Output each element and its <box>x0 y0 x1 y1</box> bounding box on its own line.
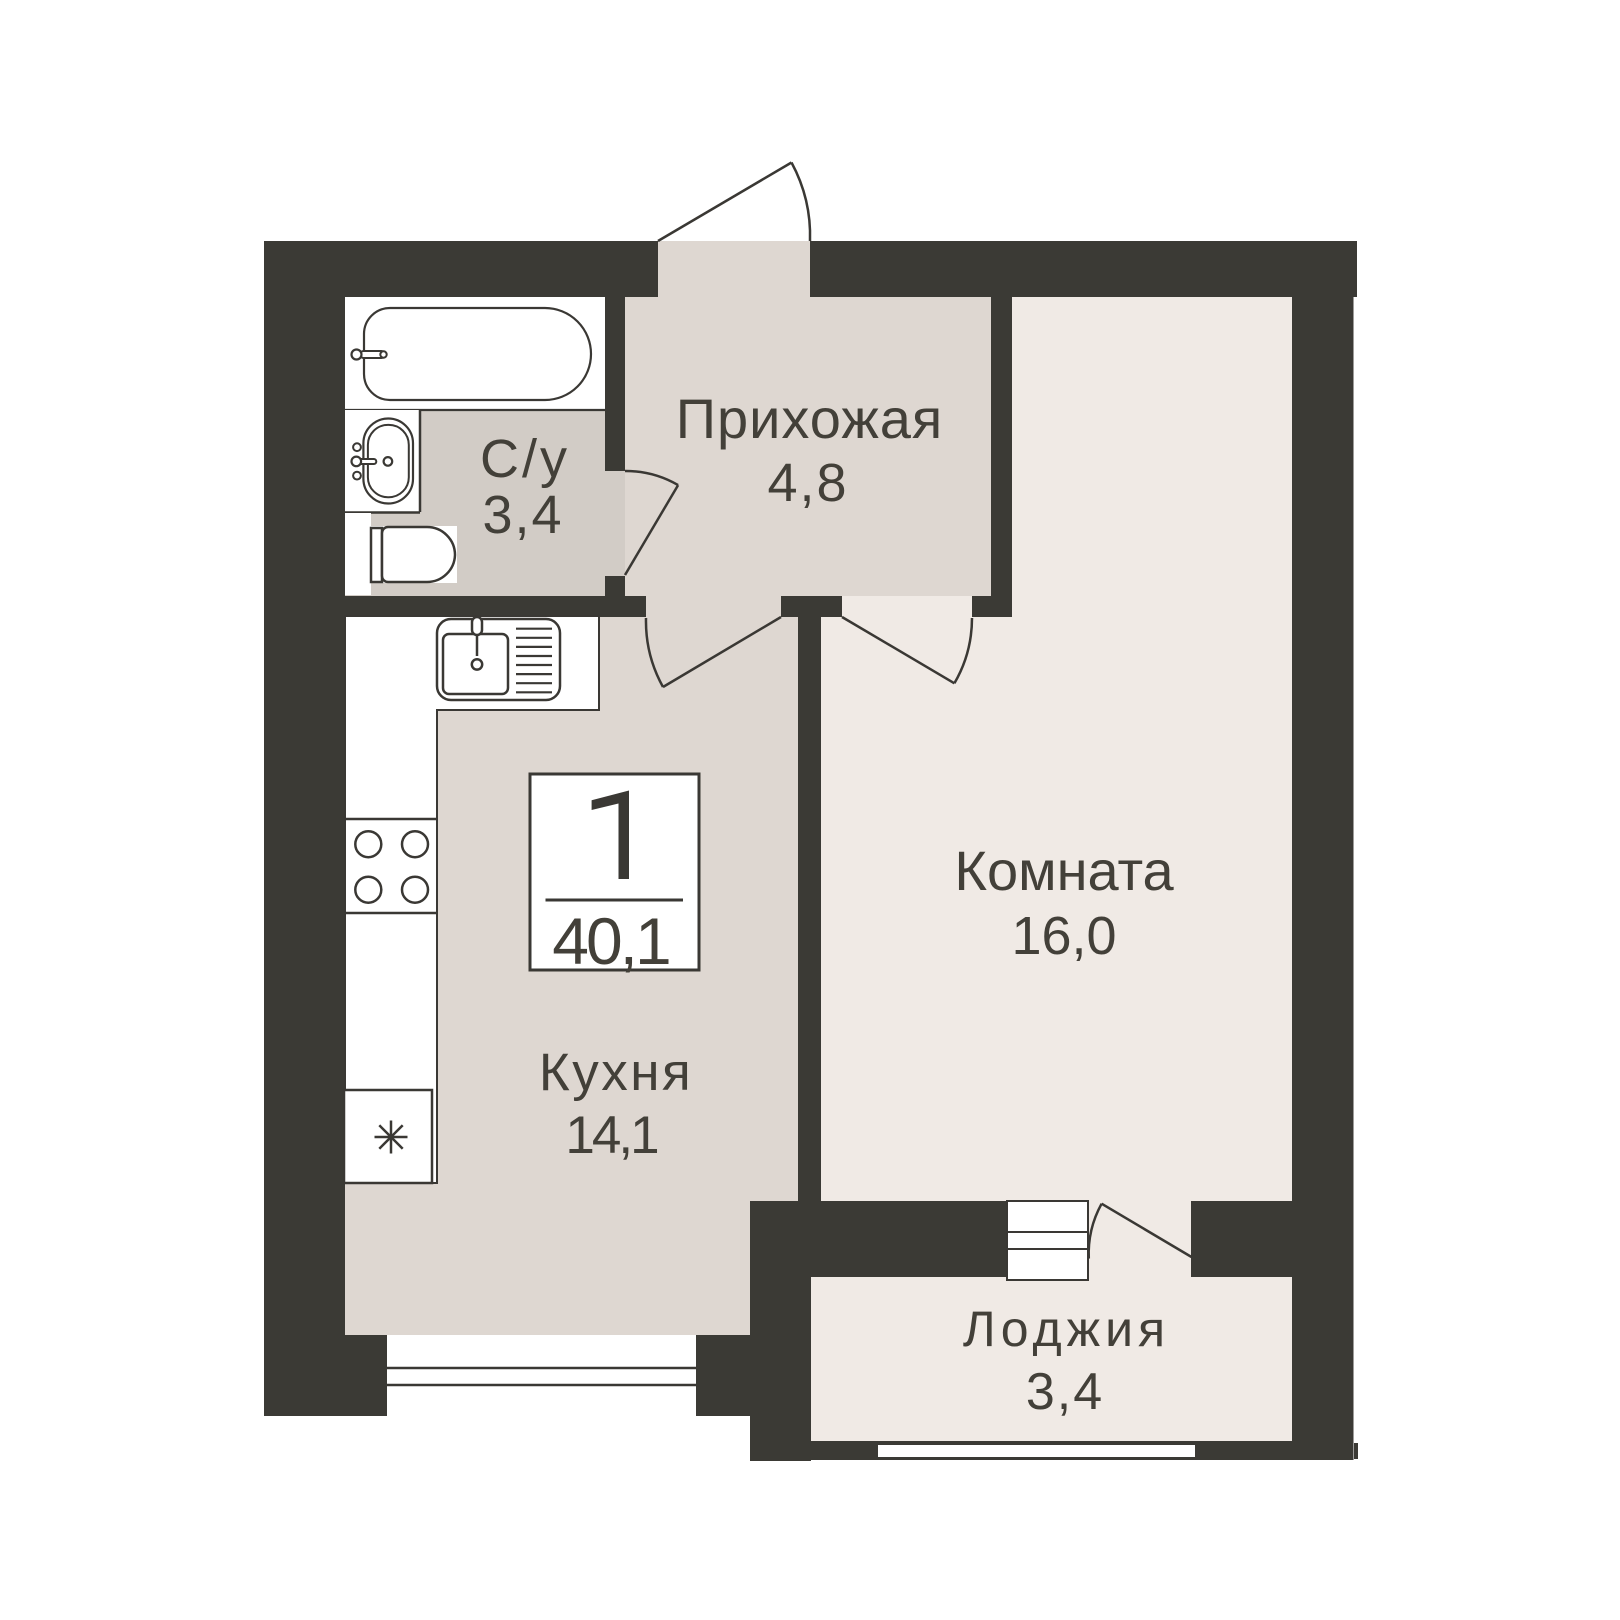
svg-text:Комната: Комната <box>954 839 1174 902</box>
svg-text:14,1: 14,1 <box>565 1106 657 1165</box>
svg-text:3,4: 3,4 <box>1026 1363 1104 1421</box>
svg-text:Прихожая: Прихожая <box>676 387 944 450</box>
svg-text:С/у: С/у <box>480 429 570 489</box>
svg-text:4,8: 4,8 <box>767 453 848 513</box>
svg-text:Лоджия: Лоджия <box>963 1301 1170 1357</box>
svg-text:16,0: 16,0 <box>1011 906 1116 966</box>
svg-text:Кухня: Кухня <box>539 1043 693 1102</box>
svg-text:3,4: 3,4 <box>482 485 563 545</box>
svg-text:40,1: 40,1 <box>552 904 669 978</box>
